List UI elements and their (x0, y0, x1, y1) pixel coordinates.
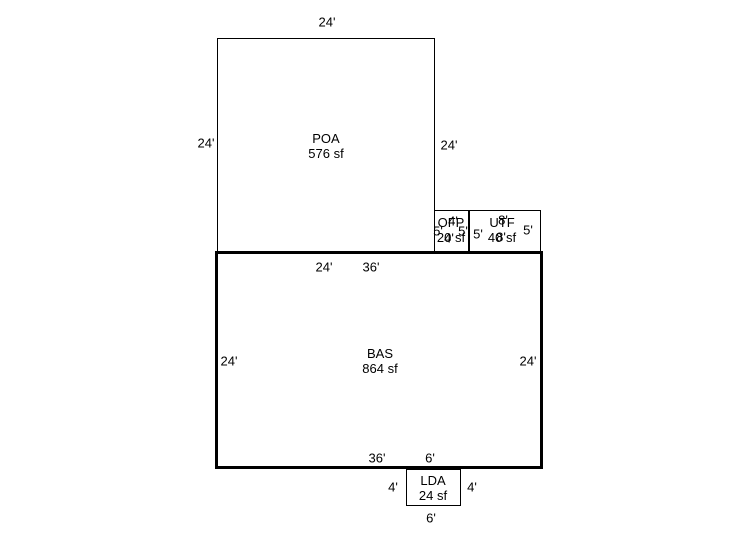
ofp-dim-right: 5' (458, 224, 468, 239)
bas-dim-bottom-seg1: 36' (369, 451, 386, 466)
ofp-dim-top: 4' (448, 214, 458, 229)
bas-dim-top-seg2: 36' (363, 260, 380, 275)
lda-sqft: 24 sf (419, 488, 447, 503)
poa-dim-right: 24' (441, 138, 458, 153)
lda-dim-bottom: 6' (426, 511, 436, 526)
poa-dim-top: 24' (319, 15, 336, 30)
bas-dim-left: 24' (221, 354, 238, 369)
bas-dim-top-seg1: 24' (316, 260, 333, 275)
utf-dim-left: 5' (473, 227, 483, 242)
bas-code: BAS (362, 346, 397, 361)
poa-dim-left: 24' (198, 136, 215, 151)
bas-sqft: 864 sf (362, 361, 397, 376)
ofp-dim-bottom: 4' (444, 231, 454, 246)
floor-plan-sketch: POA 576 sf 24' 24' 24' OFP 20 sf 4' 4' 5… (0, 0, 746, 547)
bas-dim-right: 24' (520, 354, 537, 369)
utf-dim-right: 5' (523, 223, 533, 238)
lda-dim-right: 4' (467, 480, 477, 495)
lda-code: LDA (419, 473, 447, 488)
utf-dim-bottom: 8' (496, 230, 506, 245)
bas-dim-bottom-seg2: 6' (425, 451, 435, 466)
lda-area-label: LDA 24 sf (419, 473, 447, 503)
utf-dim-top: 8' (498, 213, 508, 228)
poa-code: POA (308, 131, 343, 146)
poa-sqft: 576 sf (308, 146, 343, 161)
ofp-dim-left: 5' (433, 224, 443, 239)
bas-area-label: BAS 864 sf (362, 346, 397, 376)
poa-area-label: POA 576 sf (308, 131, 343, 161)
lda-dim-left: 4' (388, 480, 398, 495)
